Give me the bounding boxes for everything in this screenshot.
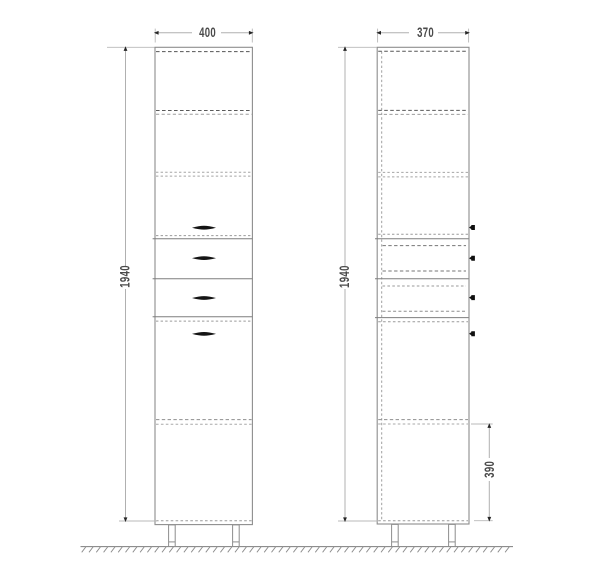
- svg-text:1940: 1940: [118, 265, 133, 288]
- svg-text:400: 400: [199, 25, 216, 40]
- svg-text:390: 390: [482, 461, 497, 478]
- svg-text:1940: 1940: [338, 265, 353, 288]
- svg-text:370: 370: [417, 25, 434, 40]
